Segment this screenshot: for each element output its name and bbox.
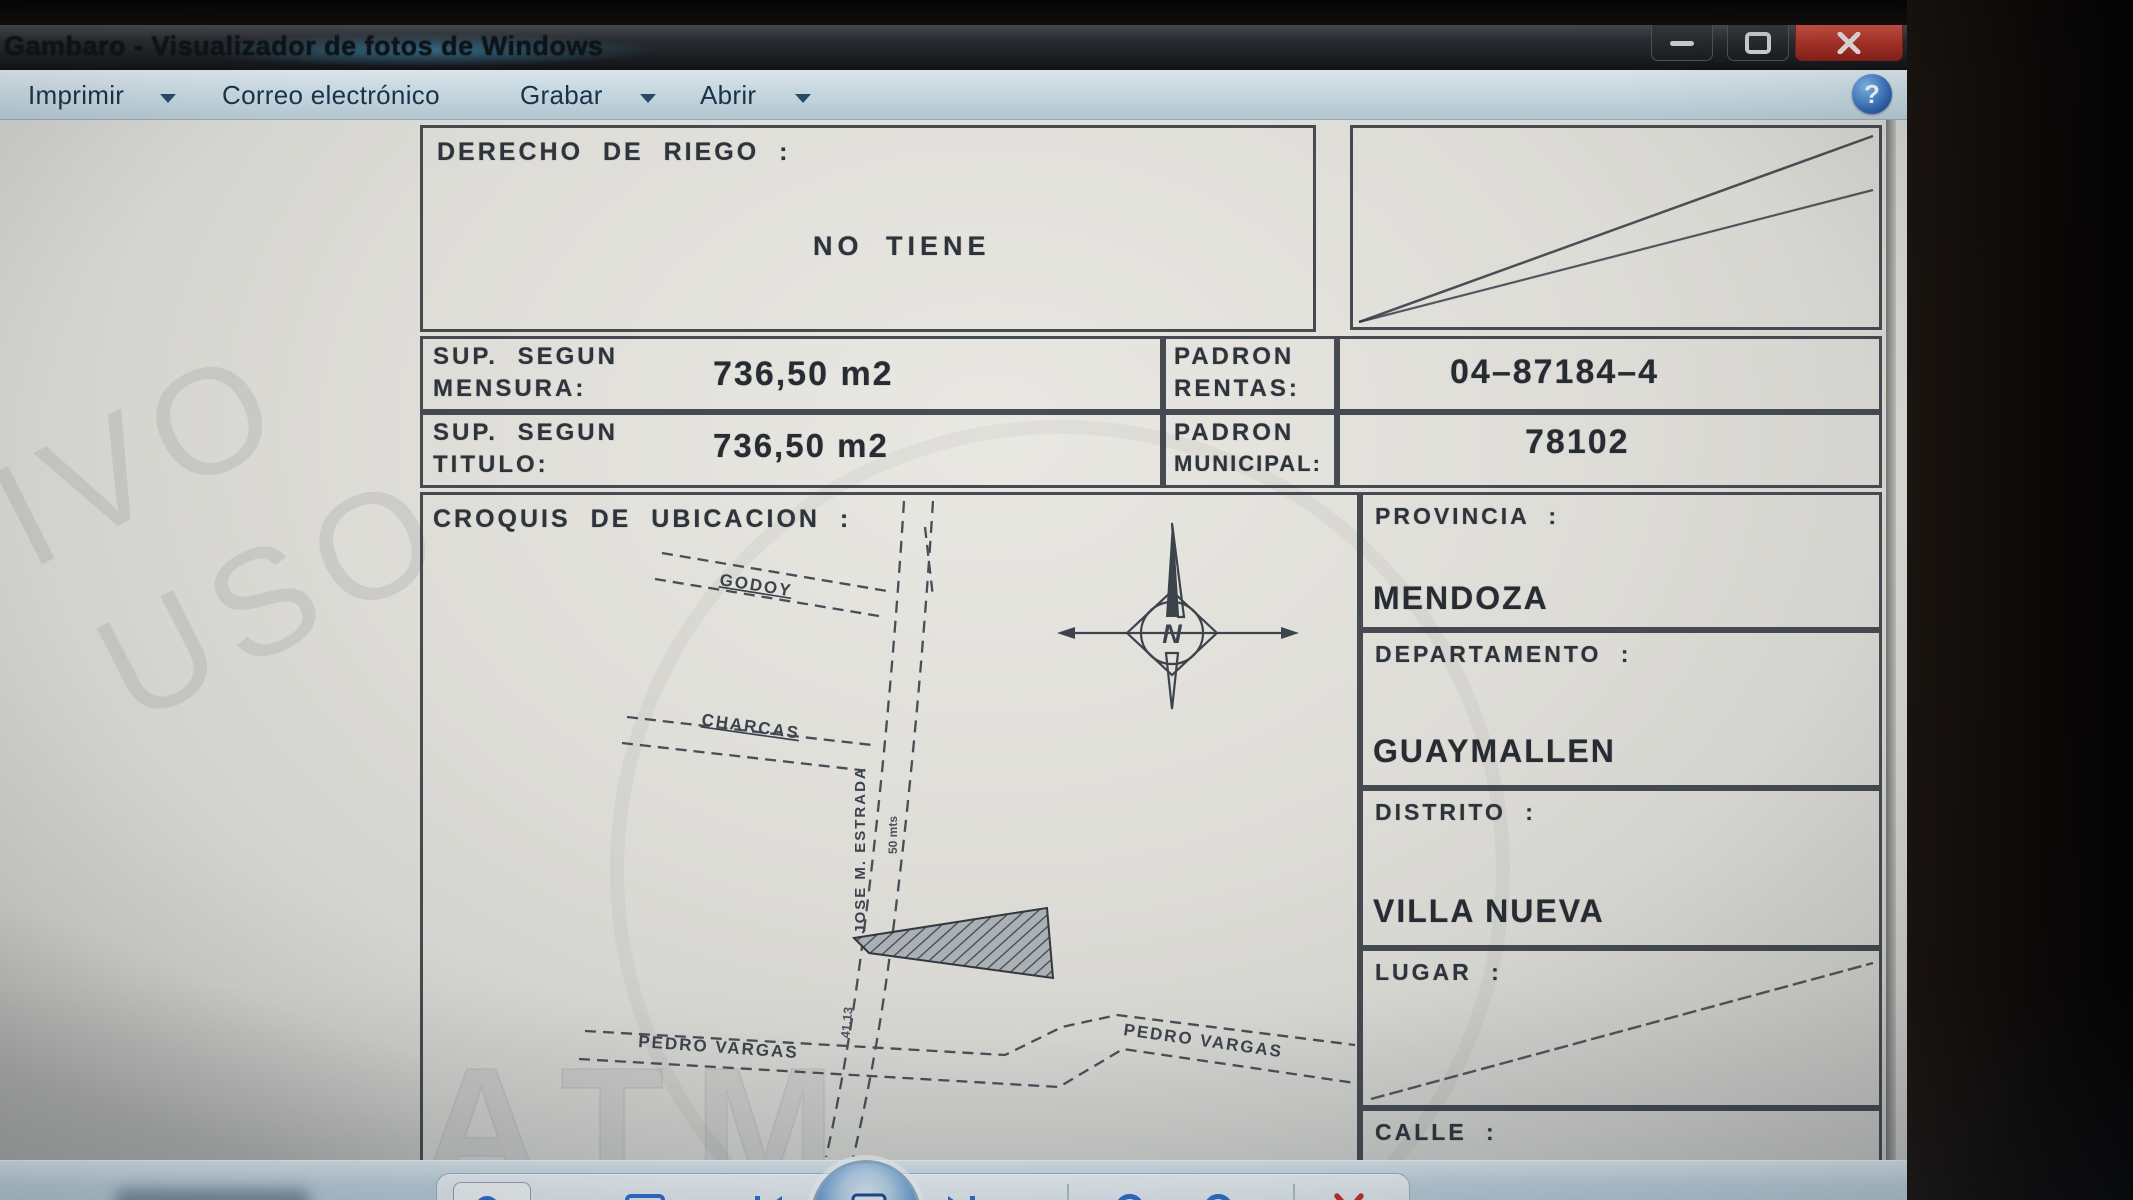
window-title: Gambaro - Visualizador de fotos de Windo… xyxy=(4,31,603,62)
toolbar-separator-2 xyxy=(1293,1184,1295,1200)
parcel-shape xyxy=(854,908,1053,978)
actual-size-button[interactable] xyxy=(601,1182,691,1200)
distrito-box: DISTRITO : VILLA NUEVA xyxy=(1360,788,1882,948)
compass-north-label: N xyxy=(1162,619,1182,649)
departamento-box: DEPARTAMENTO : GUAYMALLEN xyxy=(1360,630,1882,788)
croquis-box: CROQUIS DE UBICACION : xyxy=(420,492,1360,1160)
next-icon xyxy=(938,1190,982,1200)
viewer-toolbar-area xyxy=(0,1160,1907,1200)
minimize-icon xyxy=(1669,39,1695,47)
close-button[interactable] xyxy=(1795,25,1903,61)
menu-imprimir[interactable]: Imprimir xyxy=(28,80,124,111)
rotate-ccw-button[interactable] xyxy=(1091,1182,1171,1200)
lugar-box: LUGAR : xyxy=(1360,948,1882,1108)
abrir-dropdown-icon[interactable] xyxy=(795,94,811,103)
maximize-icon xyxy=(1745,32,1771,54)
estrada-width-annotation: 50 mts xyxy=(886,816,900,854)
padron-municipal-label-2: MUNICIPAL: xyxy=(1174,451,1322,477)
sup-mensura-label-2: MENSURA: xyxy=(433,375,586,403)
derecho-riego-label: DERECHO DE RIEGO : xyxy=(437,138,790,167)
watermark-word2: USO xyxy=(71,436,477,757)
derecho-riego-value: NO TIENE xyxy=(813,231,991,262)
sup-mensura-box: SUP. SEGUN MENSURA: 736,50 m2 xyxy=(420,336,1163,412)
derecho-riego-box: DERECHO DE RIEGO : NO TIENE xyxy=(420,125,1316,332)
topright-crossed-box xyxy=(1350,125,1882,330)
rotate-cw-button[interactable] xyxy=(1181,1182,1261,1200)
photo-viewer-window: Gambaro - Visualizador de fotos de Windo… xyxy=(0,25,1907,1200)
calle-label: CALLE : xyxy=(1375,1119,1497,1146)
sup-titulo-box: SUP. SEGUN TITULO: 736,50 m2 xyxy=(420,412,1163,488)
padron-rentas-label-box: PADRON RENTAS: xyxy=(1163,336,1337,412)
provincia-value: MENDOZA xyxy=(1373,580,1549,617)
padron-rentas-value-box: 04–87184–4 xyxy=(1337,336,1882,412)
menu-correo-electronico[interactable]: Correo electrónico xyxy=(222,80,440,111)
sup-titulo-label-2: TITULO: xyxy=(433,451,549,479)
monitor-bezel-top xyxy=(0,0,2133,25)
magnifier-icon xyxy=(470,1191,510,1200)
sup-titulo-value: 736,50 m2 xyxy=(713,427,889,465)
calle-box: CALLE : xyxy=(1360,1108,1882,1160)
provincia-label: PROVINCIA : xyxy=(1375,503,1559,530)
padron-rentas-value: 04–87184–4 xyxy=(1450,353,1659,392)
next-button[interactable] xyxy=(916,1182,1006,1200)
padron-municipal-value-box: 78102 xyxy=(1337,412,1882,488)
street-charcas-label: CHARCAS xyxy=(700,710,801,743)
street-estrada-label: JOSE M. ESTRADA xyxy=(852,766,869,934)
minimize-button[interactable] xyxy=(1651,25,1713,61)
viewer-toolbar xyxy=(436,1173,1410,1200)
rotate-cw-icon xyxy=(1199,1190,1239,1200)
photo-of-monitor: Gambaro - Visualizador de fotos de Windo… xyxy=(0,0,2133,1200)
padron-rentas-label-1: PADRON xyxy=(1174,343,1294,371)
street-godoy-label: GODOY xyxy=(718,570,793,600)
diagonal-strike xyxy=(1353,128,1879,327)
padron-rentas-label-2: RENTAS: xyxy=(1174,375,1300,403)
padron-municipal-value: 78102 xyxy=(1525,423,1630,462)
imprimir-dropdown-icon[interactable] xyxy=(160,94,176,103)
slideshow-icon xyxy=(847,1189,891,1200)
departamento-value: GUAYMALLEN xyxy=(1373,733,1616,770)
actual-size-icon xyxy=(623,1190,667,1200)
delete-button[interactable] xyxy=(1311,1182,1391,1200)
monitor-bezel-right xyxy=(1907,0,2133,1200)
previous-button[interactable] xyxy=(726,1182,816,1200)
street-pedro-vargas-left-label: PEDRO VARGAS xyxy=(638,1032,800,1062)
grabar-dropdown-icon[interactable] xyxy=(640,94,656,103)
window-titlebar[interactable]: Gambaro - Visualizador de fotos de Windo… xyxy=(0,25,1907,70)
distrito-label: DISTRITO : xyxy=(1375,799,1536,826)
rotate-ccw-icon xyxy=(1109,1190,1149,1200)
watermark-word1: IVO xyxy=(0,311,313,602)
help-icon: ? xyxy=(1864,79,1880,109)
street-pedro-vargas-right-label: PEDRO VARGAS xyxy=(1122,1020,1284,1061)
lugar-diagonal-strike xyxy=(1363,951,1879,1105)
slideshow-button[interactable] xyxy=(811,1160,921,1200)
parcel-frontage-annotation: 41.13 xyxy=(838,1006,855,1039)
departamento-label: DEPARTAMENTO : xyxy=(1375,641,1631,668)
paper-right-edge xyxy=(1886,120,1896,1160)
compass-rose xyxy=(1057,523,1299,709)
help-button[interactable]: ? xyxy=(1852,74,1892,114)
sup-titulo-label-1: SUP. SEGUN xyxy=(433,419,618,447)
scanned-document: IVO USO ATM DERECHO DE RIEGO : NO TIENE … xyxy=(0,120,1907,1160)
sup-mensura-value: 736,50 m2 xyxy=(713,355,894,394)
toolbar-separator-1 xyxy=(1067,1184,1069,1200)
menu-grabar[interactable]: Grabar xyxy=(520,80,603,111)
menu-abrir[interactable]: Abrir xyxy=(700,80,756,111)
maximize-button[interactable] xyxy=(1727,25,1789,61)
delete-icon xyxy=(1329,1190,1369,1200)
padron-municipal-label-box: PADRON MUNICIPAL: xyxy=(1163,412,1337,488)
distrito-value: VILLA NUEVA xyxy=(1373,893,1605,930)
previous-icon xyxy=(748,1190,792,1200)
padron-municipal-label-1: PADRON xyxy=(1174,419,1294,447)
provincia-box: PROVINCIA : MENDOZA xyxy=(1360,492,1882,630)
close-icon xyxy=(1837,32,1861,54)
status-smudge xyxy=(115,1189,310,1200)
location-sketch: GODOY CHARCAS JOSE M. ESTRADA 50 mts 41.… xyxy=(423,495,1357,1157)
sup-mensura-label-1: SUP. SEGUN xyxy=(433,343,618,371)
zoom-button[interactable] xyxy=(453,1182,531,1200)
menubar: Imprimir Correo electrónico Grabar Abrir… xyxy=(0,70,1907,120)
paper-shadow xyxy=(0,880,420,1160)
